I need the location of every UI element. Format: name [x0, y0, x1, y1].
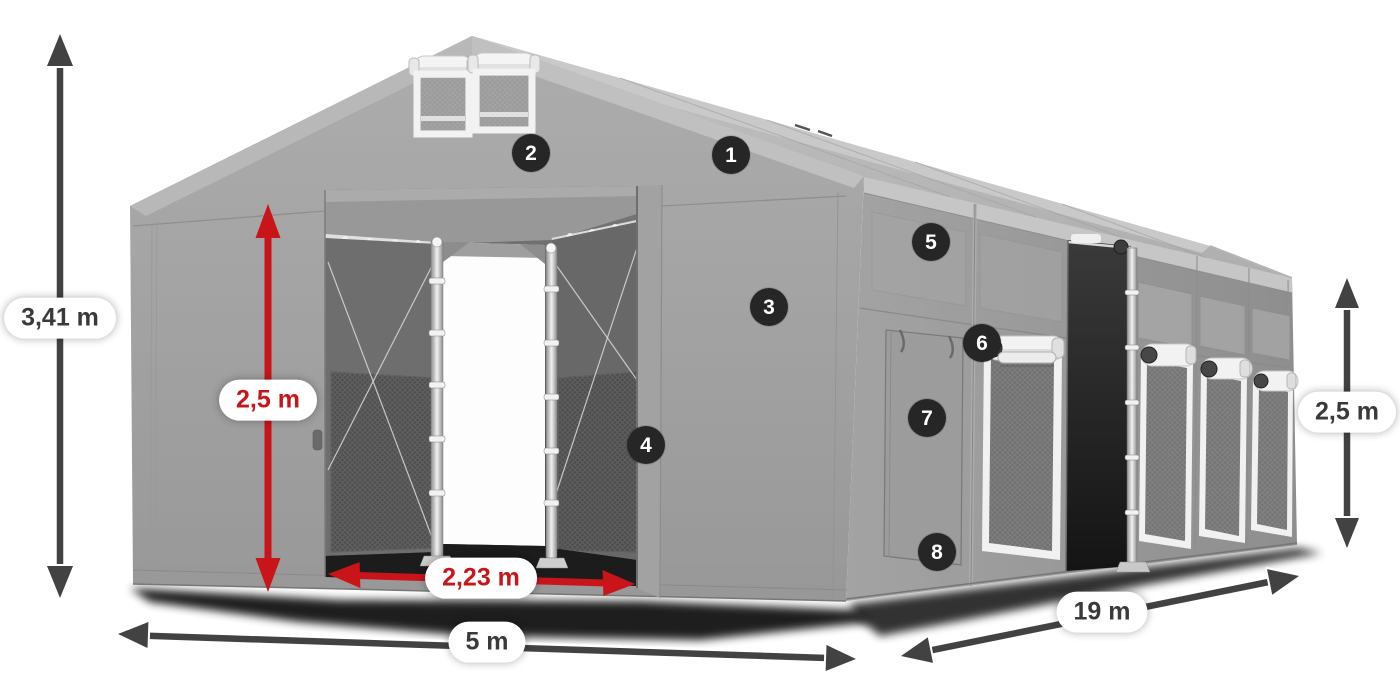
dimension-label-width: 5 m	[450, 624, 523, 661]
feature-marker-3: 3	[750, 288, 788, 326]
window-roll-handle	[998, 352, 1056, 363]
feature-marker-2: 2	[512, 134, 550, 172]
feature-marker-4: 4	[627, 426, 665, 464]
dimension-label-door-width: 2,23 m	[427, 560, 535, 597]
side-mesh-window-2	[1139, 344, 1196, 549]
dimension-label-door-height: 2,5 m	[221, 382, 315, 419]
roof-vent-window-left	[409, 56, 477, 134]
side-mesh-window-4	[1251, 371, 1298, 537]
dimension-label-side-height: 2,5 m	[1300, 394, 1394, 431]
feature-marker-5: 5	[912, 223, 950, 261]
door-roller	[1114, 240, 1128, 254]
sliding-door-pole	[1127, 248, 1137, 564]
side-mesh-window-3	[1199, 358, 1252, 543]
tent-illustration	[0, 0, 1400, 700]
feature-marker-7: 7	[908, 399, 946, 437]
dimension-label-total-height: 3,41 m	[6, 300, 114, 337]
feature-marker-8: 8	[918, 533, 956, 571]
through-passage-view	[443, 242, 545, 546]
front-door-frame-post	[637, 185, 662, 598]
tent-dimension-diagram: 1 2 3 4 5 6 7 8 3,41 m 2,5 m 2,23 m 5 m …	[0, 0, 1400, 700]
side-mesh-window-1	[982, 336, 1064, 560]
feature-marker-6: 6	[963, 324, 1001, 362]
roof-vent-window-right	[468, 53, 540, 130]
door-holder-strap	[313, 430, 322, 450]
front-opening	[325, 186, 637, 586]
side-door-panel	[884, 330, 963, 565]
dimension-label-length: 19 m	[1059, 594, 1146, 631]
feature-marker-1: 1	[712, 136, 750, 174]
